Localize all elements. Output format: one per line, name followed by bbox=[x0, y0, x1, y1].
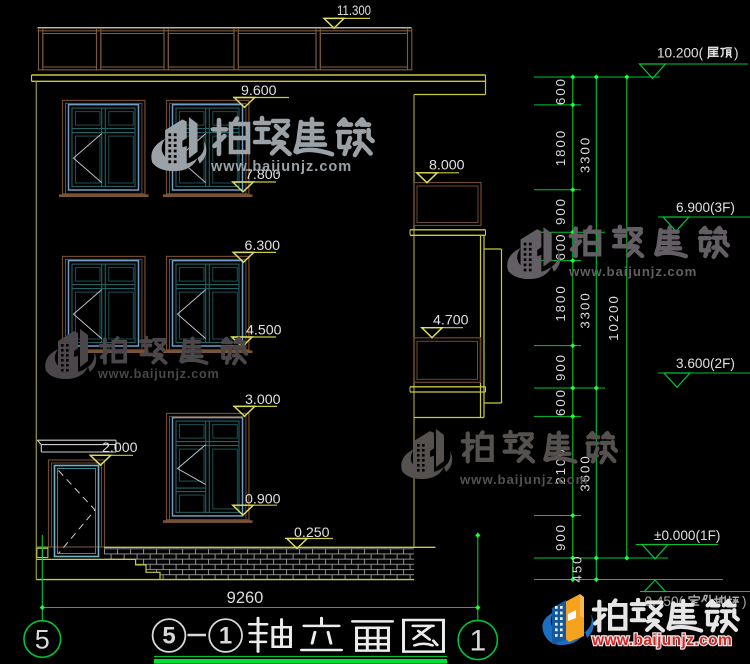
svg-text:3.600(2F): 3.600(2F) bbox=[676, 356, 735, 371]
svg-text:www.baijunjz.com: www.baijunjz.com bbox=[568, 264, 697, 279]
svg-text:±0.000(1F): ±0.000(1F) bbox=[654, 528, 720, 543]
svg-text:600: 600 bbox=[553, 388, 568, 416]
svg-text:600: 600 bbox=[553, 232, 568, 260]
svg-text:900: 900 bbox=[553, 523, 568, 551]
svg-text:): ) bbox=[742, 594, 747, 609]
svg-text:1800: 1800 bbox=[553, 284, 568, 321]
svg-text:1: 1 bbox=[469, 625, 486, 658]
svg-text:11.300: 11.300 bbox=[337, 3, 371, 18]
svg-text:www.baijunjz.com: www.baijunjz.com bbox=[97, 367, 220, 381]
svg-text:9.600: 9.600 bbox=[241, 83, 277, 99]
svg-text:5: 5 bbox=[35, 625, 50, 655]
svg-text:3.000: 3.000 bbox=[245, 392, 281, 408]
svg-text:2.000: 2.000 bbox=[102, 440, 138, 456]
svg-text:4.500: 4.500 bbox=[246, 322, 282, 338]
svg-text:3300: 3300 bbox=[578, 136, 593, 173]
svg-text:3300: 3300 bbox=[578, 291, 593, 328]
svg-text:900: 900 bbox=[553, 353, 568, 381]
svg-text:9260: 9260 bbox=[227, 589, 264, 607]
svg-text:www.baijunjz.com: www.baijunjz.com bbox=[591, 632, 732, 649]
svg-text:6.300: 6.300 bbox=[245, 238, 281, 254]
svg-text:6.900(3F): 6.900(3F) bbox=[676, 200, 735, 215]
svg-text:10.200(: 10.200( bbox=[657, 46, 704, 61]
svg-text:5: 5 bbox=[162, 623, 175, 650]
svg-text:450: 450 bbox=[570, 554, 585, 582]
svg-text:8.000: 8.000 bbox=[429, 158, 465, 174]
svg-text:1: 1 bbox=[219, 623, 232, 650]
svg-text:900: 900 bbox=[553, 197, 568, 225]
svg-text:www.baijunjz.com: www.baijunjz.com bbox=[459, 472, 588, 487]
svg-text:10200: 10200 bbox=[606, 294, 621, 341]
svg-text:4.700: 4.700 bbox=[433, 313, 469, 329]
svg-text:): ) bbox=[734, 46, 739, 61]
svg-text:www.baijunjz.com: www.baijunjz.com bbox=[210, 159, 352, 175]
svg-text:1800: 1800 bbox=[553, 129, 568, 166]
svg-text:600: 600 bbox=[553, 77, 568, 105]
